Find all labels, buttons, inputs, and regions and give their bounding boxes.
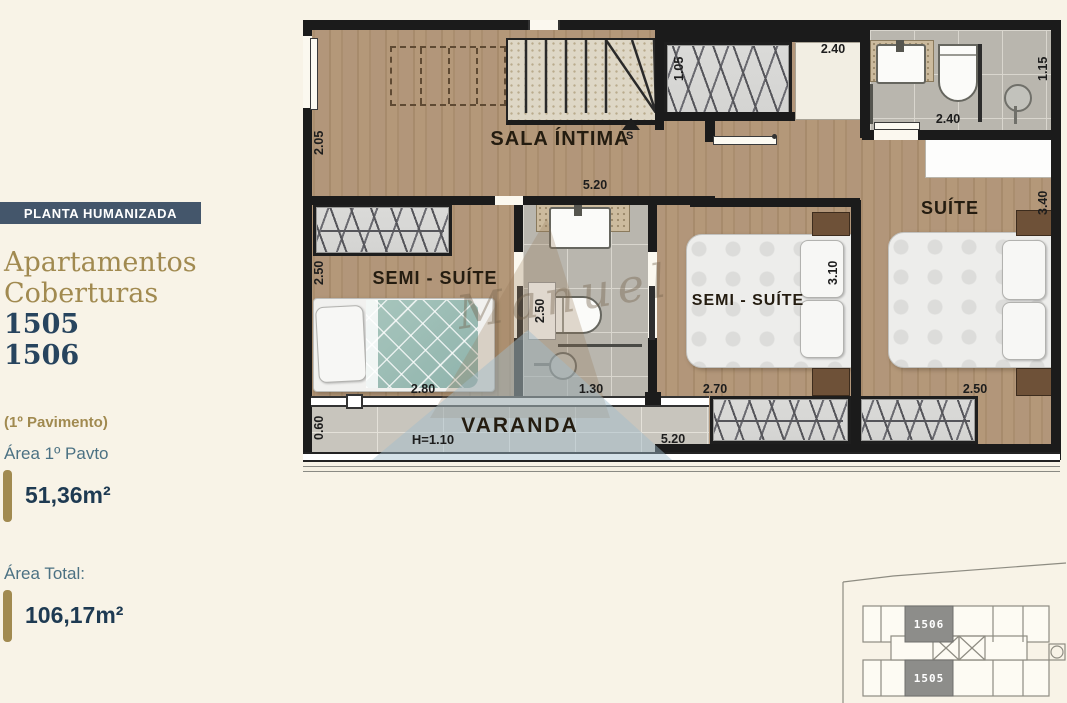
dim-suite-bath-depth: 1.15 [1036, 48, 1050, 90]
toilet-tank-line [940, 54, 976, 56]
unit-number-1506: 1506 [4, 341, 79, 372]
stairs-landing-floor [506, 38, 664, 125]
dim-semi1-depth: 2.50 [312, 250, 326, 296]
balcony-column [346, 394, 363, 409]
semi-suite-2-nightstand [812, 212, 850, 236]
semi-suite-1-duvet [366, 300, 478, 388]
suite-dresser [925, 136, 1054, 178]
dim-sala-height: 2.05 [312, 120, 326, 166]
suite-bath-toilet [938, 44, 978, 102]
suite-closet [858, 396, 978, 444]
wall [860, 28, 870, 138]
title-line-1: Apartamentos [4, 248, 197, 279]
site-boundary-line [843, 563, 1066, 582]
suite-nightstand [1016, 368, 1054, 396]
suite-bath-shower-arm [1014, 106, 1017, 124]
semi-suite-1-sheet-fold [366, 300, 378, 388]
suite-bath-shower-divider [978, 44, 982, 122]
wall [851, 200, 861, 444]
wall [655, 22, 870, 42]
title-line-2: Coberturas [4, 279, 197, 310]
stairs-dashed-upper [390, 46, 506, 106]
floor-note: (1º Pavimento) [4, 414, 108, 431]
suite-bath-door-leaf [874, 122, 920, 130]
suite-bath-faucet [896, 40, 904, 52]
dim-suite-width: 2.50 [942, 382, 1008, 396]
key-plan-unit-top-label: 1506 [914, 618, 945, 631]
unit-number-1505: 1505 [4, 310, 79, 341]
stairs-treads [508, 40, 658, 113]
dim-hall: 2.40 [805, 42, 861, 56]
bath-door-leaf [517, 286, 523, 340]
dim-suite-bath-width: 2.40 [918, 112, 978, 126]
area-total-accent-bar [3, 590, 12, 642]
balcony-railing [303, 452, 1060, 462]
shared-bath-toilet [552, 296, 602, 334]
shared-bath-shower-head [549, 352, 577, 380]
site-detail [1051, 646, 1063, 658]
room-label-semi-suite-1: SEMI - SUÍTE [350, 268, 520, 289]
key-plan: 1506 1505 [833, 556, 1067, 703]
plan-type-badge: PLANTA HUMANIZADA [0, 202, 201, 224]
area-floor-value: 51,36m² [25, 482, 111, 509]
room-label-suite: SUÍTE [885, 198, 1015, 219]
dim-shared-bath-width: 1.30 [558, 382, 624, 396]
door-gap [874, 130, 918, 140]
dim-varanda-rail-height: H=1.10 [398, 432, 468, 447]
wall [645, 392, 661, 405]
suite-pillow [1002, 240, 1046, 300]
semi-suite-1-closet [313, 204, 452, 256]
dim-suite-depth: 3.40 [1036, 180, 1050, 226]
door-gap [495, 196, 523, 205]
door-handle [772, 134, 777, 139]
suite-bath-shower-head [1004, 84, 1032, 112]
bath-door-leaf [649, 286, 655, 340]
dim-semi2-depth: 3.10 [826, 250, 840, 296]
stairs-dashed-line [448, 48, 450, 104]
dim-sala-width: 5.20 [565, 178, 625, 192]
dim-varanda-width: 5.20 [640, 432, 706, 446]
page-title: Apartamentos Coberturas [4, 248, 197, 309]
entry-door-leaf [310, 38, 318, 110]
wall [655, 112, 795, 121]
area-floor-label: Área 1º Pavto [4, 444, 109, 464]
key-plan-unit-bottom-label: 1505 [914, 672, 945, 685]
area-floor-accent-bar [3, 470, 12, 522]
suite-pillow [1002, 302, 1046, 360]
page: PLANTA HUMANIZADA Apartamentos Cobertura… [0, 0, 1067, 703]
wall [690, 198, 860, 207]
wall [303, 20, 528, 30]
unit-numbers: 1505 1506 [4, 310, 79, 371]
building-row-bottom [863, 660, 1049, 696]
dim-varanda-depth: 0.60 [312, 408, 326, 448]
balcony-lower-edge [303, 466, 1060, 472]
dim-semi1-width: 2.80 [395, 382, 451, 396]
semi-suite-2-nightstand [812, 368, 850, 396]
room-label-semi-suite-2: SEMI - SUÍTE [668, 292, 828, 310]
toilet-tank-line [562, 298, 564, 332]
stairs-dashed-line [476, 48, 478, 104]
semi-suite-2-closet [710, 396, 851, 444]
dim-semi2-width: 2.70 [686, 382, 744, 396]
wall [1051, 20, 1061, 460]
window-gap [528, 20, 560, 30]
room-label-sala-intima: SALA ÍNTIMA [430, 128, 690, 151]
dim-hall-closet: 1.05 [672, 48, 686, 90]
corridor-door-leaf [713, 136, 777, 145]
stairs-dashed-line [420, 48, 422, 104]
area-total-label: Área Total: [4, 564, 85, 584]
shared-bath-shower-arm [534, 363, 550, 366]
shared-bath-towel-bar [558, 344, 642, 347]
dim-shared-bath-depth: 2.50 [533, 288, 547, 334]
semi-suite-1-pillow [315, 305, 367, 383]
area-total-value: 106,17m² [25, 602, 123, 629]
shared-bath-faucet [574, 204, 582, 216]
